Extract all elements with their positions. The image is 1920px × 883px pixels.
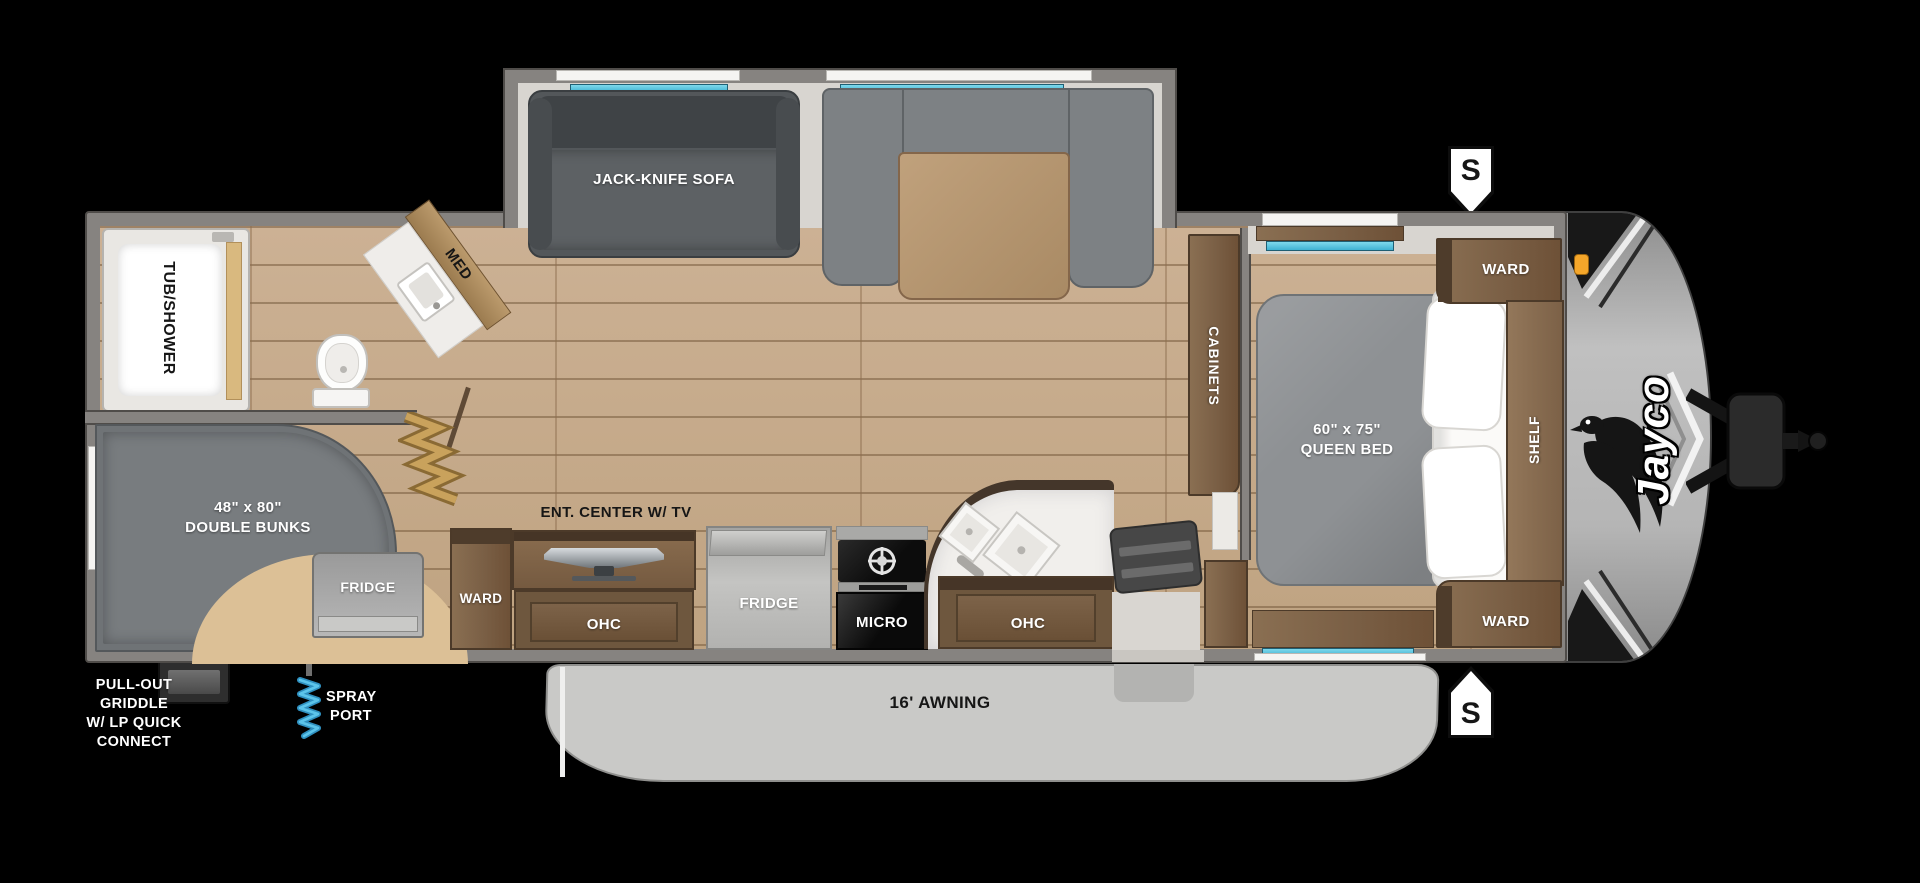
hitch-ball (1809, 432, 1827, 450)
ent-center-label: ENT. CENTER W/ TV (518, 503, 714, 523)
spray-port-caption: SPRAY PORT (326, 688, 408, 726)
hall-ward (450, 528, 512, 650)
hitch (1686, 376, 1836, 506)
sofa-label: JACK-KNIFE SOFA (564, 170, 764, 190)
sink-ohc (938, 576, 1114, 649)
micro-label: MICRO (837, 613, 927, 633)
speaker-badge-bottom: S (1448, 666, 1494, 738)
entry-landing (1112, 592, 1200, 650)
bedroom-shelf-label: SHELF (1519, 365, 1549, 515)
coupler (1782, 433, 1798, 449)
toilet-icon (312, 334, 372, 410)
bedroom-dresser (1204, 560, 1248, 648)
tub-shower-label: TUB/SHOWER (138, 218, 198, 418)
bedroom-ward-bottom-label: WARD (1446, 612, 1566, 632)
sink-ohc-label: OHC (968, 614, 1088, 634)
bunks-name-label: DOUBLE BUNKS (148, 518, 348, 538)
dinette-table (898, 152, 1070, 300)
awning (543, 664, 1439, 782)
pillow-top (1421, 296, 1508, 432)
bedroom-white-panel (1212, 492, 1238, 550)
bedroom-wall-stub (1240, 228, 1251, 560)
bedroom-bottom-window (1254, 653, 1426, 661)
ent-center (512, 530, 696, 590)
floorplan-canvas: 16' AWNING PULL-OUT GRIDDLE W/ LP QUICK … (0, 0, 1920, 883)
speaker-letter: S (1461, 154, 1481, 187)
entry-door-threshold (1112, 650, 1204, 662)
awning-label: 16' AWNING (860, 692, 1020, 714)
accordion-door (398, 412, 472, 506)
pillow-bottom (1421, 444, 1508, 580)
bedroom-top-window-sill (1266, 241, 1394, 251)
bedroom-window-valance (1256, 226, 1404, 241)
tv-icon (544, 548, 664, 568)
bedroom-cabinets-label: CABINETS (1199, 291, 1229, 441)
queen-bed-caption: 60" x 75" QUEEN BED (1257, 420, 1437, 459)
entry-steps (1109, 520, 1203, 595)
propane-tank-cover (1728, 394, 1784, 488)
ent-ohc-label: OHC (544, 615, 664, 635)
kitchen-fridge (706, 526, 832, 650)
jayco-logo-text: Jayco (1626, 330, 1682, 550)
marker-light (1574, 254, 1589, 275)
bedroom-low-cabinet (1252, 610, 1434, 648)
hall-ward-label: WARD (451, 590, 511, 608)
spray-coil-icon (294, 676, 324, 740)
dinette-arm-right (1068, 88, 1154, 288)
awning-seam (560, 667, 565, 777)
slideout-window-right (826, 70, 1092, 81)
speaker-badge-top: S (1448, 146, 1494, 218)
bedroom-ward-top-label: WARD (1446, 260, 1566, 280)
bunks-size-label: 48" x 80" (148, 498, 348, 518)
bedroom-top-window (1262, 213, 1398, 226)
entry-step-shadow (1114, 664, 1194, 702)
speaker-letter: S (1461, 697, 1481, 730)
griddle-caption: PULL-OUT GRIDDLE W/ LP QUICK CONNECT (66, 676, 202, 751)
slideout-window-left (556, 70, 740, 81)
bath-divider-wall (85, 410, 417, 425)
burner-icon (864, 545, 900, 577)
bunk-fridge-label: FRIDGE (318, 578, 418, 596)
kitchen-fridge-label: FRIDGE (709, 594, 829, 614)
dinette-arm-left (822, 88, 904, 286)
